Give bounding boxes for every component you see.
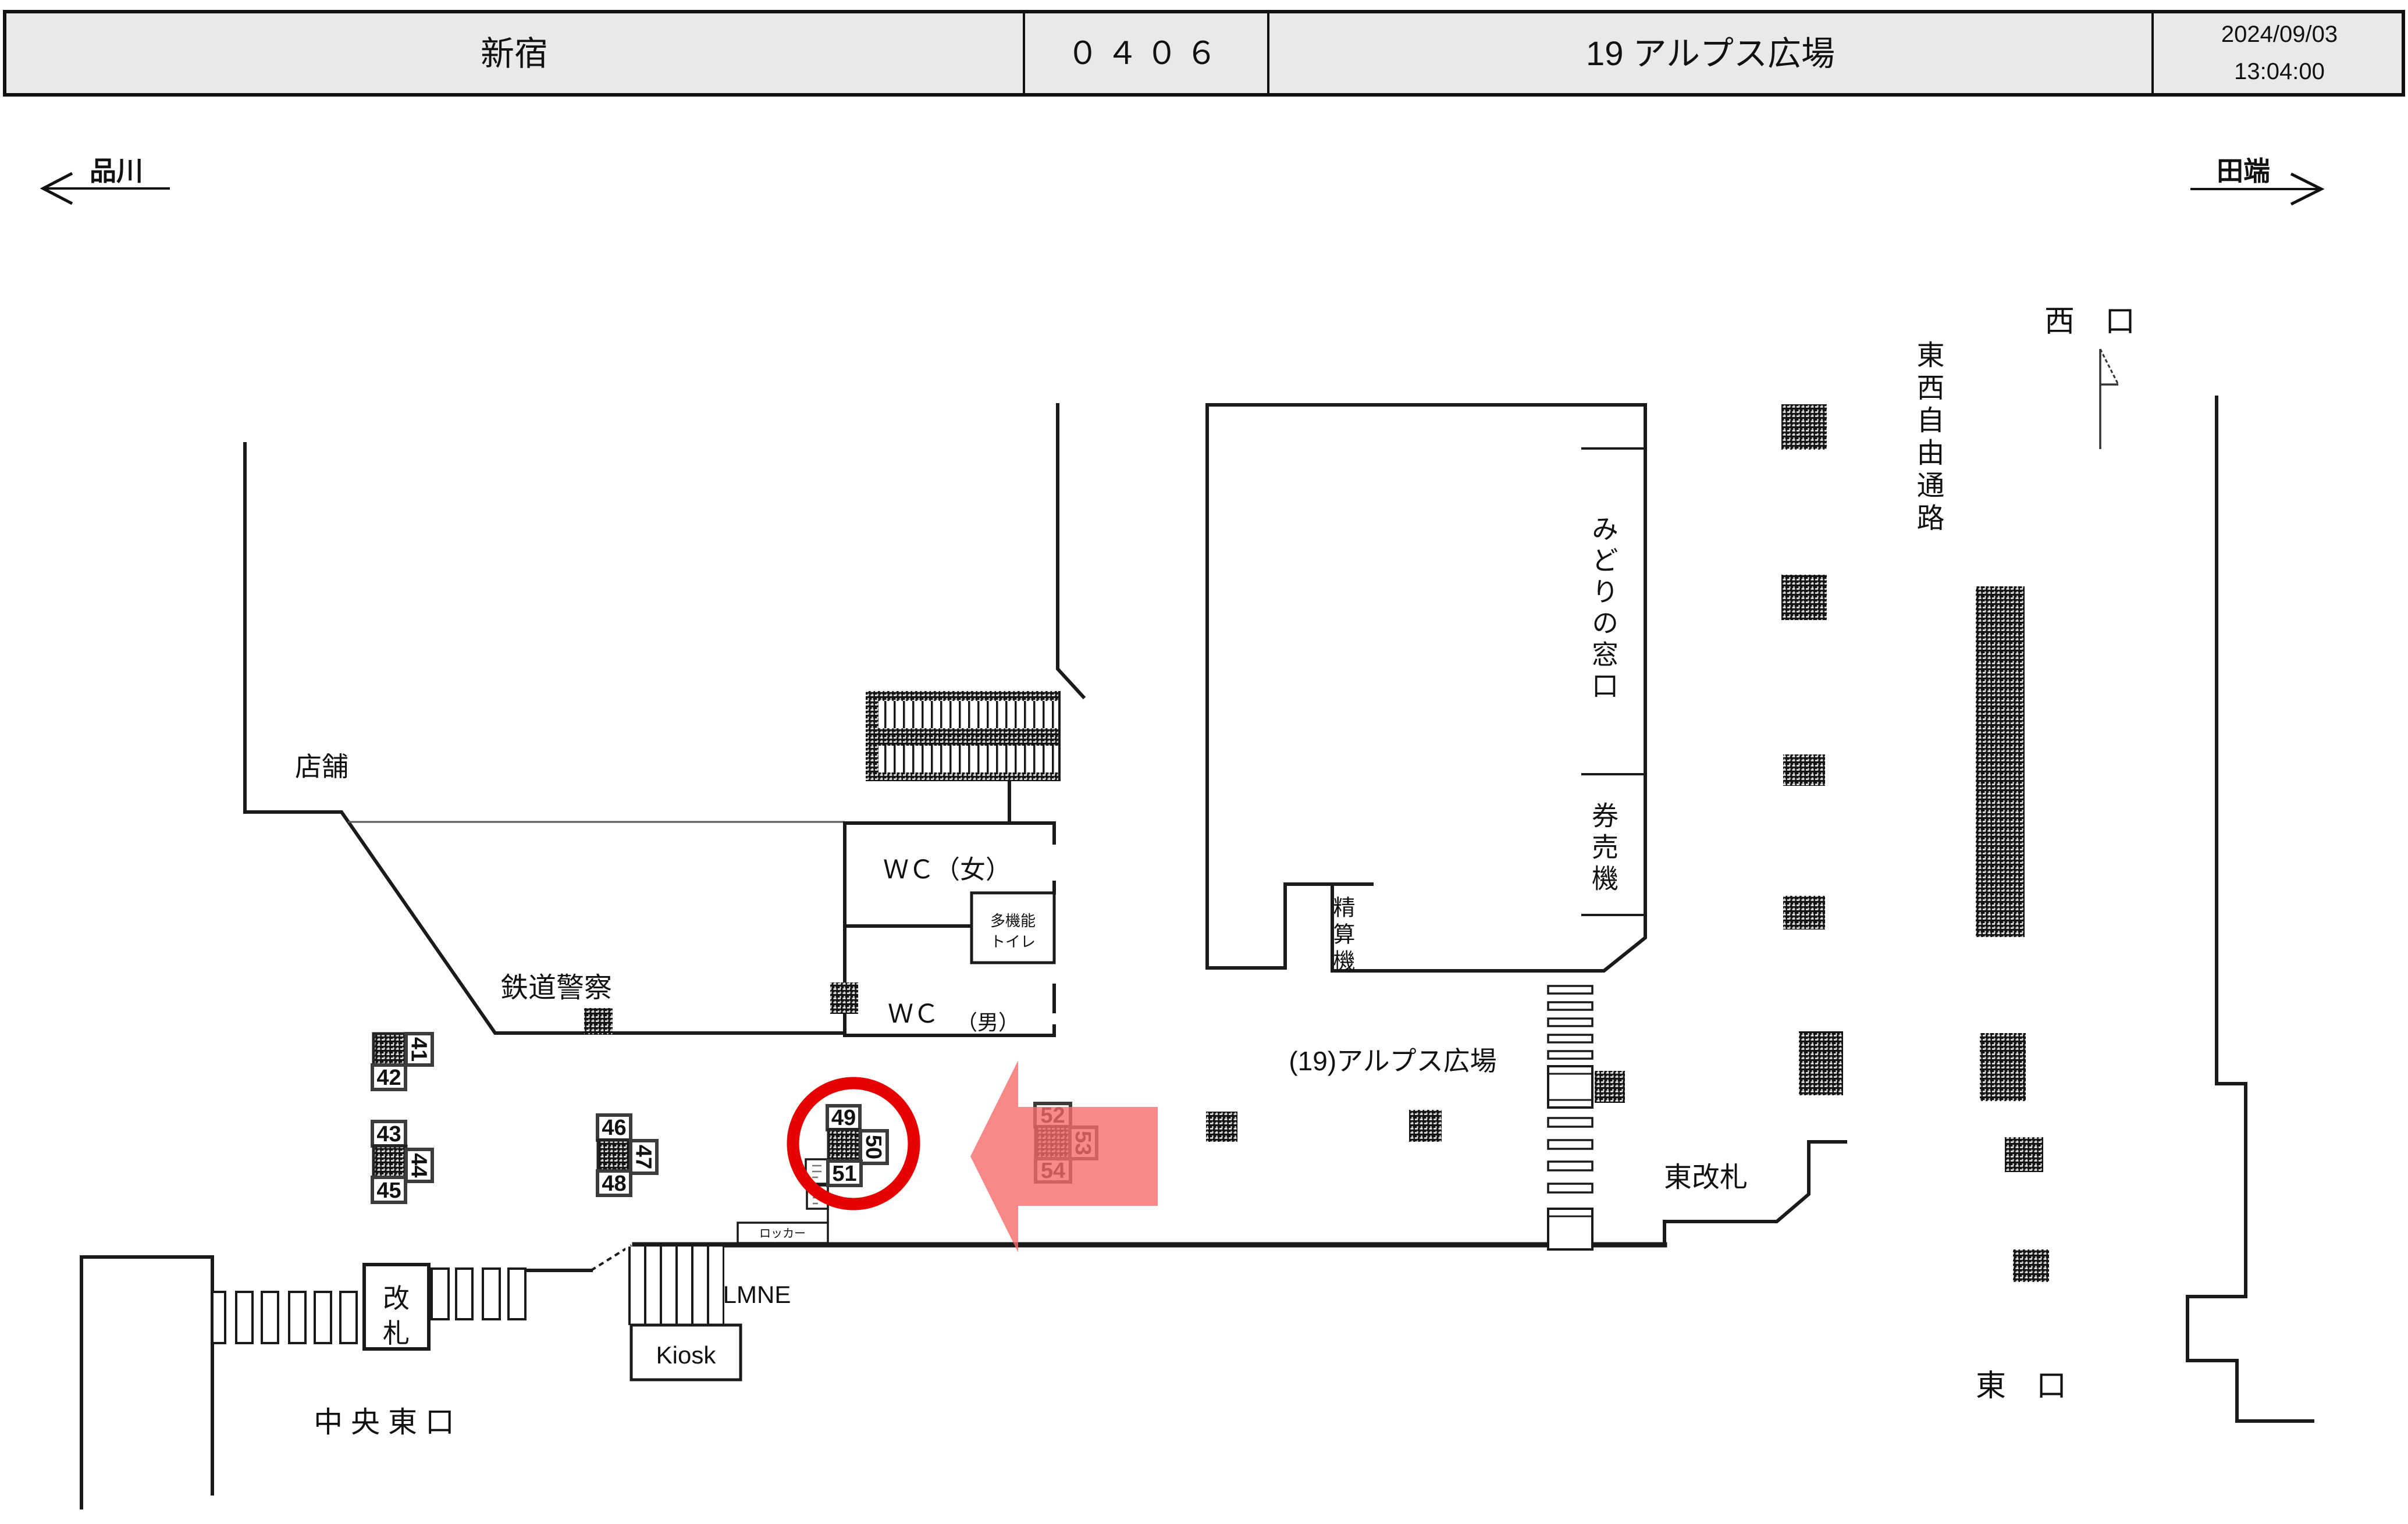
corridor-label: 東西自由通路 — [1912, 340, 1944, 536]
west-exit-flag — [2100, 349, 2118, 449]
ad-board-hatch — [1781, 575, 1827, 620]
ad-spot-51: 51 — [828, 1161, 861, 1186]
header-bar: 新宿 ０４０６ 19 アルプス広場 2024/09/03 13:04:00 — [5, 12, 2403, 95]
kiosk-area: Kiosk ロッカー — [625, 1159, 828, 1380]
lmne-label: LMNE — [723, 1281, 791, 1308]
central-gate-area: 改 札 — [212, 1265, 525, 1349]
svg-text:49: 49 — [831, 1106, 856, 1130]
ad-board-hatch — [1595, 1071, 1625, 1103]
ad-board-hatch — [1206, 1112, 1237, 1142]
svg-text:50: 50 — [861, 1135, 885, 1159]
east-gate-machines — [1548, 986, 1592, 1249]
svg-text:43: 43 — [376, 1122, 401, 1146]
ad-spot-46: 46 — [597, 1115, 631, 1140]
map-labels: 西 口 東西自由通路 みどりの窓口 券売機 精算機 店舗 鉄道警察 ＷＣ（女） … — [295, 305, 2135, 1438]
plaza-top-right-wall — [1207, 405, 1645, 971]
location-code: ０４０６ — [1067, 36, 1225, 71]
wc-women-label: ＷＣ（女） — [883, 856, 1011, 884]
gate-label-1: 改 — [383, 1283, 410, 1313]
ad-spot-48: 48 — [597, 1171, 631, 1196]
svg-text:51: 51 — [832, 1162, 856, 1186]
ad-board-hatch — [830, 982, 858, 1014]
ad-board-hatch — [2013, 1249, 2049, 1282]
ad-board-hatch — [584, 1008, 613, 1034]
ad-spot-cluster-46-48: 46 47 48 — [597, 1115, 657, 1196]
southwest-wall — [81, 1257, 212, 1508]
ad-spot-hatch — [374, 1034, 406, 1065]
east-exit-label: 東 口 — [1976, 1369, 2066, 1403]
svg-text:42: 42 — [376, 1066, 401, 1090]
ad-board-hatch — [1781, 404, 1827, 450]
kiosk-stair-treads — [625, 1247, 724, 1325]
ad-spot-cluster-43-45: 43 44 45 — [372, 1121, 432, 1203]
ad-spot-45: 45 — [372, 1177, 406, 1203]
stair-hatched-bottom — [878, 772, 1059, 781]
hatched-boards — [584, 404, 2049, 1282]
stair-hatched-top — [878, 691, 1059, 701]
ad-board-hatch — [1799, 1031, 1843, 1095]
corridor-left-wall — [1058, 405, 1083, 697]
ad-spot-47: 47 — [631, 1141, 657, 1173]
wc-men-label: ＷＣ — [888, 1000, 939, 1028]
west-exit-label: 西 口 — [2044, 305, 2135, 339]
date-stamp: 2024/09/03 — [2221, 22, 2338, 47]
ad-board-hatch — [1980, 1033, 2026, 1101]
east-gate-wall — [1664, 1142, 1845, 1245]
shops-label: 店舗 — [295, 752, 348, 782]
time-stamp: 13:04:00 — [2234, 59, 2325, 84]
plaza-left-wall — [1207, 405, 1285, 968]
direction-left-label: 品川 — [90, 156, 143, 186]
multi-toilet-label-1: 多機能 — [990, 912, 1036, 930]
stair-dashed-edge — [591, 1245, 631, 1270]
ad-spot-42: 42 — [372, 1065, 406, 1090]
ticket-machines-label: 券売機 — [1588, 802, 1619, 896]
multi-toilet-label-2: トイレ — [990, 933, 1036, 950]
ad-spot-50: 50 — [860, 1131, 887, 1163]
direction-shinagawa: 品川 — [43, 156, 170, 204]
ad-spot-cluster-41-42: 41 42 — [372, 1034, 432, 1090]
svg-text:46: 46 — [602, 1116, 626, 1140]
ad-spot-hatch — [598, 1140, 630, 1171]
ad-spot-49: 49 — [827, 1106, 860, 1130]
ad-spot-hatch — [374, 1146, 406, 1177]
wc-men-suffix-label: （男） — [956, 1010, 1019, 1034]
kiosk-label: Kiosk — [656, 1341, 717, 1369]
direction-right-label: 田端 — [2217, 156, 2270, 186]
svg-text:48: 48 — [602, 1172, 626, 1196]
fare-adjustment-label: 精算機 — [1329, 896, 1354, 976]
ad-spot-43: 43 — [372, 1121, 406, 1146]
ad-board-hatch — [2005, 1137, 2043, 1172]
shop-wall — [245, 444, 845, 1033]
gate-label-2: 札 — [383, 1318, 410, 1348]
east-gate-label: 東改札 — [1664, 1162, 1748, 1193]
stair-treads-lower — [878, 746, 1059, 772]
midori-window-label: みどりの窓口 — [1588, 515, 1619, 703]
direction-tabata: 田端 — [2190, 156, 2321, 204]
locker-label: ロッカー — [759, 1227, 806, 1240]
flag-edge-icon — [2100, 349, 2118, 384]
stair-hatched-middle — [878, 728, 1059, 746]
page-title: 19 アルプス広場 — [1586, 35, 1835, 73]
svg-text:47: 47 — [631, 1145, 656, 1169]
railway-police-label: 鉄道警察 — [500, 973, 612, 1003]
highlight-arrow-icon — [970, 1060, 1158, 1252]
ad-board-hatch-large — [1976, 586, 2025, 937]
svg-text:41: 41 — [407, 1037, 431, 1062]
stair-treads-upper — [878, 701, 1059, 728]
svg-text:45: 45 — [376, 1178, 401, 1203]
station-name: 新宿 — [481, 35, 548, 73]
ad-board-hatch — [1409, 1110, 1442, 1142]
ad-board-hatch — [1783, 754, 1825, 786]
ad-board-hatch — [1783, 896, 1825, 930]
plaza-label: (19)アルプス広場 — [1289, 1046, 1496, 1076]
east-outer-wall — [2188, 397, 2313, 1421]
stair-hatched-side — [866, 691, 878, 781]
main-staircase — [866, 691, 1059, 781]
station-map-page: 新宿 ０４０６ 19 アルプス広場 2024/09/03 13:04:00 品川… — [0, 0, 2408, 1524]
svg-text:44: 44 — [407, 1153, 431, 1177]
central-east-exit-label: 中 央 東 口 — [314, 1406, 454, 1438]
ad-spot-44: 44 — [406, 1149, 432, 1181]
ad-spot-cluster-49-51: 49 50 51 — [827, 1106, 887, 1186]
ad-spot-41: 41 — [406, 1034, 432, 1065]
ad-spot-hatch — [828, 1130, 860, 1161]
fare-adjustment-alcove — [1285, 884, 1372, 971]
